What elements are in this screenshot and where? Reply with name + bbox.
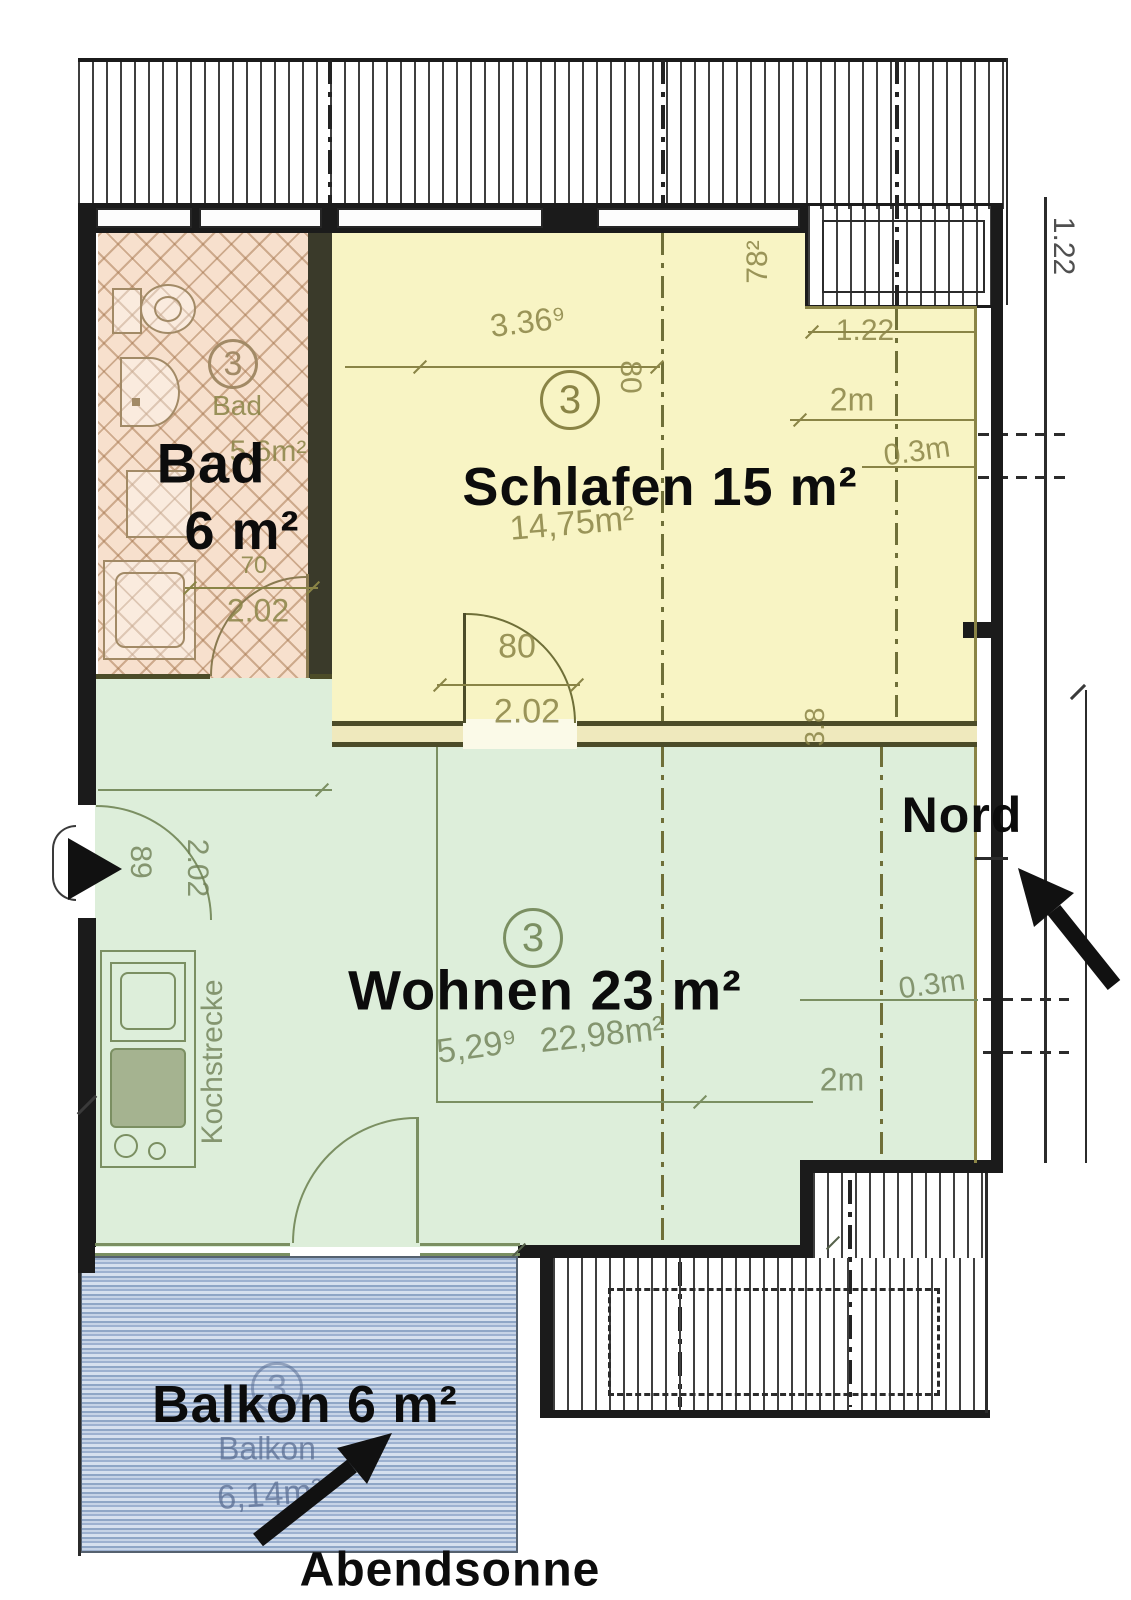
dim-2m-mid: 2m [820,1062,864,1099]
wall-bottom-right [800,1160,1003,1173]
entry-direction-arrow [68,838,126,902]
unit-number: 3 [559,378,581,423]
wall-left-upper [78,203,96,805]
evening-sun-arrow [240,1418,410,1558]
wall-step-vertical [800,1160,813,1258]
roof-dashdot-1 [328,60,332,205]
hatch-bottom-border [540,1410,990,1418]
wall-bottom-mid [518,1245,813,1258]
dormer-notch-inner [822,220,985,293]
window-top-1 [96,208,192,228]
sink-dot [132,398,140,406]
hatch-right-border [985,1173,988,1413]
kitchen-stove [110,1048,186,1128]
dim-baddoor-h: 2.02 [227,593,289,630]
floor-plan: 1.22 [0,0,1131,1600]
dim-entry-w: 89 [123,845,157,878]
roof-tick-cross [1070,684,1086,700]
dim-line-2m-top [790,419,975,421]
toilet-tank [112,288,142,334]
sink [120,357,180,427]
kitchen-sink-basin [120,972,176,1030]
unit-number: 3 [522,916,544,961]
dashdot-right-schlafen [895,308,898,723]
dashdot-right-wohnen [880,745,883,1163]
balcony-window-right [420,1243,520,1256]
bad-area-label: 6 m² [184,500,299,562]
hatch-dashed-rect [608,1288,940,1396]
kitchen-hotplate-2 [148,1142,166,1160]
wall-bad-wohnen-right [310,674,332,679]
kitchen-label: Kochstrecke [196,979,230,1144]
wall-left-balcony-stub [78,1247,95,1273]
window-top-3 [337,208,543,228]
door-balcony-leaf [416,1117,419,1243]
roof-edge-line [1044,197,1047,1163]
wall-right-sill [963,622,1003,638]
dim-entry-h: 2.02 [180,839,214,897]
wall-bad-wohnen-left [96,674,210,679]
schlafen-label: Schlafen 15 m² [462,456,857,518]
wall-left-lower [78,918,96,1247]
roof-dim-label: 1.22 [1046,217,1080,275]
dim-wall-38: 3.8 [799,708,831,747]
hatch-left-border [540,1247,553,1418]
dim-78: 78² [741,240,775,283]
wall-bad-schlafen [308,233,332,678]
dim-door-w: 80 [498,628,536,667]
roof-hatch-bottom-step [813,1173,985,1258]
balcony-left-edge [78,1273,81,1556]
unit-circle-bad: 3 [208,339,258,389]
shower-tray-inner [115,572,185,648]
dim-2m-top: 2m [830,382,874,419]
schlafen-top-right-edge [805,306,977,309]
hatch-right-edge [1006,58,1008,305]
unit-circle-schlafen: 3 [540,370,600,430]
dim-door-h: 2.02 [494,693,560,732]
dim-line-entry [98,789,332,791]
dashdot-right-top [895,60,899,308]
window-top-2 [199,208,322,228]
north-arrow [1000,855,1125,995]
nord-label: Nord [902,786,1023,844]
wall-schlafen-wohnen [332,721,977,747]
bad-label: Bad [157,431,266,496]
unit-number: 3 [224,345,243,384]
bad-orig-name: Bad [212,390,262,422]
toilet-bowl-inner [154,296,182,322]
window-top-4 [597,208,800,228]
wohnen-label: Wohnen 23 m² [348,958,742,1023]
kitchen-hotplate-1 [114,1134,138,1158]
dim-line-door80 [437,684,580,686]
dashdot-center-top [661,60,665,205]
dim-80v: 80 [613,360,647,393]
roof-hatch-top [78,58,1008,209]
dim-line-2m-mid [437,1101,813,1103]
dim-122-top: 1.22 [836,314,894,348]
wall-right [991,203,1003,1170]
dim-line-baddoor [185,587,318,589]
balcony-window-left [95,1243,290,1256]
